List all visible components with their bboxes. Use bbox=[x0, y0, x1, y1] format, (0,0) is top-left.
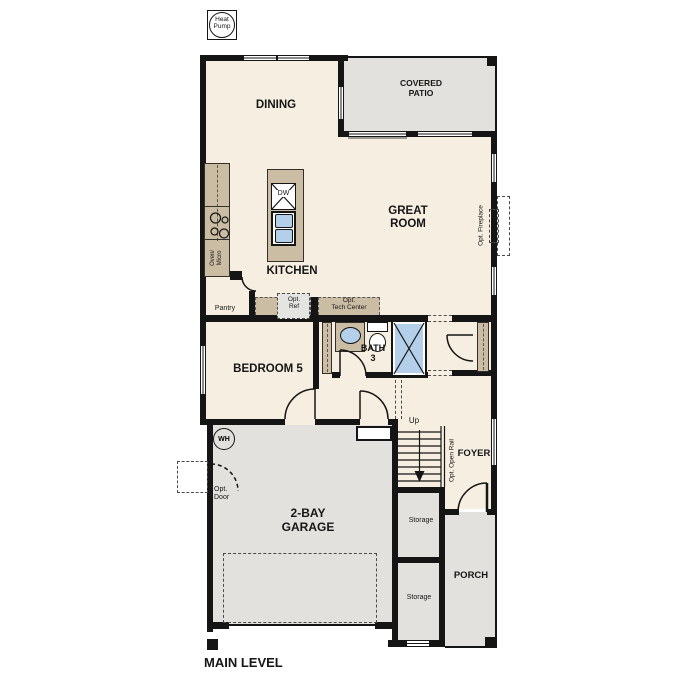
wall-bath-south-a bbox=[332, 372, 340, 378]
bath-sink-icon bbox=[340, 327, 361, 344]
wall-closet-north bbox=[452, 315, 497, 322]
toilet-tank-icon bbox=[367, 322, 388, 332]
counter-divider-1 bbox=[204, 206, 230, 207]
wall-hall-south-b bbox=[315, 419, 360, 425]
pantry-label: Pantry bbox=[202, 305, 248, 313]
window-storage bbox=[406, 640, 430, 647]
bath3-label: BATH 3 bbox=[358, 343, 388, 364]
storage-floor bbox=[398, 490, 439, 640]
wall-bath-entry-dashline bbox=[327, 324, 328, 372]
wall-garage-left bbox=[207, 419, 213, 632]
porch-label: PORCH bbox=[447, 571, 495, 582]
water-heater-icon: WH bbox=[213, 428, 235, 450]
opt-open-rail-label: Opt. Open Rail bbox=[449, 426, 456, 496]
foyer-label: FOYER bbox=[452, 449, 496, 460]
garage-door-line bbox=[229, 624, 375, 626]
great-room-label: GREAT ROOM bbox=[368, 205, 448, 231]
shower bbox=[391, 320, 427, 377]
opt-door-outline bbox=[177, 461, 208, 493]
sink-basin-1 bbox=[275, 214, 293, 228]
storage1-label: Storage bbox=[397, 517, 445, 525]
opening-hall-foyer bbox=[395, 380, 402, 419]
storage2-label: Storage bbox=[395, 594, 443, 602]
porch-post bbox=[485, 637, 495, 647]
opt-ref-label: Opt. Ref bbox=[278, 296, 310, 311]
wall-foyer-south-b bbox=[487, 509, 497, 515]
window-greatroom-right-2 bbox=[491, 266, 497, 296]
dishwasher-label: DW bbox=[271, 190, 296, 198]
stairs-up-label: Up bbox=[402, 416, 426, 425]
shower-pan bbox=[395, 324, 423, 373]
patio-post bbox=[487, 56, 497, 66]
dining-label: DINING bbox=[240, 99, 312, 112]
wall-counter-stub bbox=[310, 297, 318, 315]
wall-garage-stairs bbox=[392, 419, 398, 647]
bedroom5-label: BEDROOM 5 bbox=[218, 363, 318, 376]
kitchen-label: KITCHEN bbox=[257, 265, 327, 278]
opt-fireplace-label: Opt. Fireplace bbox=[478, 191, 485, 261]
window-greatroom-right-1 bbox=[491, 153, 497, 183]
sink-basin-2 bbox=[275, 229, 293, 243]
window-greatroom-patio bbox=[417, 131, 473, 137]
kitchen-counter-dashline bbox=[217, 165, 218, 241]
window-dining-2 bbox=[277, 55, 310, 61]
opening-hall-north bbox=[428, 315, 452, 322]
window-dining-patio bbox=[338, 86, 344, 120]
garage-door-outline bbox=[223, 553, 377, 623]
slider-track bbox=[348, 137, 407, 139]
opt-door-label: Opt. Door bbox=[214, 486, 244, 502]
opt-fireplace-inner bbox=[489, 209, 499, 243]
wall-garage-bottom-left bbox=[207, 622, 229, 629]
covered-patio-label: COVERED PATIO bbox=[392, 79, 450, 98]
counter-divider-2 bbox=[204, 239, 230, 240]
wall-pantry-stub bbox=[230, 271, 242, 280]
wall-bedroom-bath bbox=[313, 322, 319, 389]
post-bottom-left bbox=[207, 639, 218, 650]
wall-closet-south bbox=[452, 370, 497, 376]
oven-micro-label: Oven/ Micro bbox=[210, 241, 224, 275]
garage-label: 2-BAY GARAGE bbox=[276, 507, 340, 534]
porch-edge-right bbox=[495, 512, 497, 648]
patio-edge-right bbox=[495, 56, 497, 135]
opt-tech-center-label: Opt. Tech Center bbox=[320, 297, 378, 312]
wall-stairs-south bbox=[392, 487, 445, 493]
patio-edge-top bbox=[343, 56, 496, 58]
garage-step bbox=[356, 426, 392, 441]
window-bedroom5 bbox=[200, 345, 206, 395]
closet-shelf-dashline bbox=[483, 324, 484, 370]
wall-storage-divider bbox=[392, 557, 445, 563]
page-title: MAIN LEVEL bbox=[204, 656, 344, 671]
opening-hall-south bbox=[428, 370, 452, 376]
heat-pump-label: Heat Pump bbox=[207, 16, 237, 30]
window-dining-1 bbox=[243, 55, 277, 61]
wall-foyer-south-a bbox=[439, 509, 459, 515]
floor-plan: WH bbox=[0, 0, 687, 687]
wall-hall-south-a bbox=[200, 419, 285, 425]
